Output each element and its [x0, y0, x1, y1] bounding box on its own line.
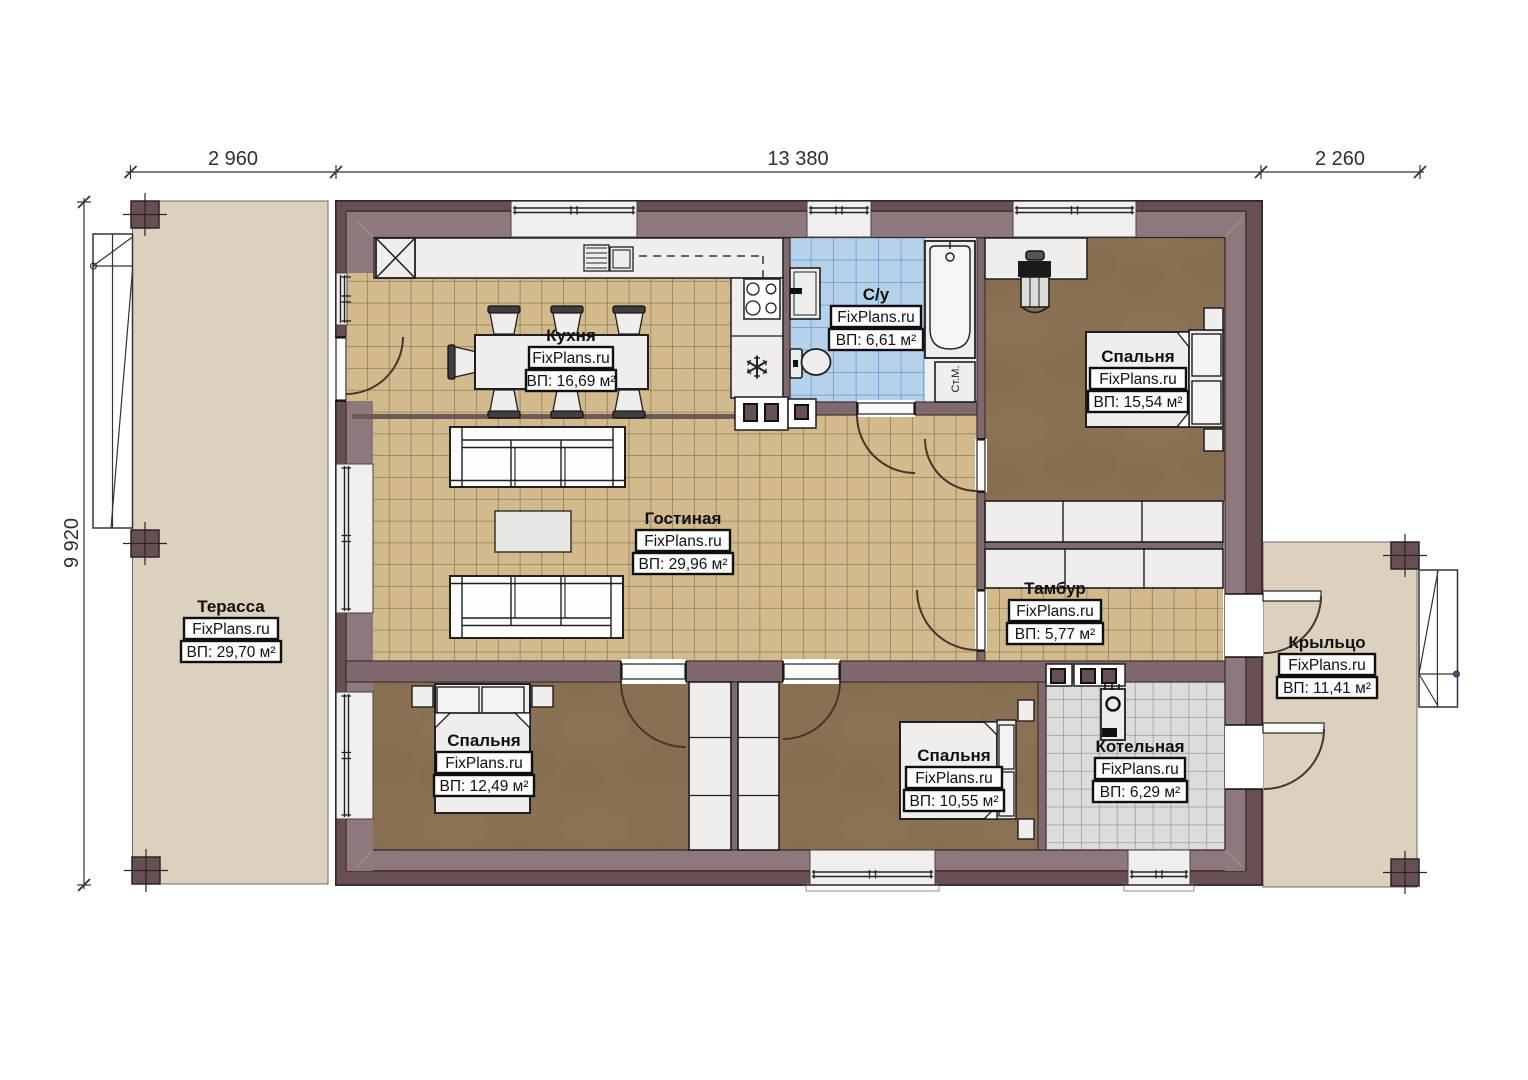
svg-text:ВП: 15,54 м²: ВП: 15,54 м²: [1093, 394, 1182, 411]
svg-text:FixPlans.ru: FixPlans.ru: [1101, 761, 1179, 778]
svg-text:ВП: 10,55 м²: ВП: 10,55 м²: [909, 793, 998, 810]
svg-text:Кухня: Кухня: [546, 326, 596, 345]
svg-text:ВП: 16,69 м²: ВП: 16,69 м²: [526, 373, 615, 390]
svg-text:ВП: 29,96 м²: ВП: 29,96 м²: [638, 556, 727, 573]
svg-text:FixPlans.ru: FixPlans.ru: [445, 755, 523, 772]
svg-text:FixPlans.ru: FixPlans.ru: [192, 621, 270, 638]
svg-text:FixPlans.ru: FixPlans.ru: [644, 533, 722, 550]
svg-text:ВП: 6,29 м²: ВП: 6,29 м²: [1100, 784, 1180, 801]
svg-text:Спальня: Спальня: [917, 746, 990, 765]
svg-text:FixPlans.ru: FixPlans.ru: [1016, 603, 1094, 620]
svg-text:ВП: 5,77 м²: ВП: 5,77 м²: [1015, 626, 1095, 643]
svg-text:FixPlans.ru: FixPlans.ru: [1288, 657, 1366, 674]
svg-text:Гостиная: Гостиная: [645, 509, 722, 528]
svg-text:Ст.М.: Ст.М.: [950, 365, 962, 392]
svg-text:2 260: 2 260: [1315, 148, 1365, 170]
svg-text:9 920: 9 920: [61, 518, 83, 568]
svg-text:ВП: 11,41 м²: ВП: 11,41 м²: [1283, 680, 1371, 697]
svg-text:ВП: 12,49 м²: ВП: 12,49 м²: [439, 778, 528, 795]
svg-text:Спальня: Спальня: [447, 731, 520, 750]
svg-text:Котельная: Котельная: [1095, 737, 1184, 756]
svg-text:FixPlans.ru: FixPlans.ru: [1099, 371, 1177, 388]
svg-text:FixPlans.ru: FixPlans.ru: [532, 350, 610, 367]
svg-text:Тамбур: Тамбур: [1024, 579, 1086, 598]
svg-text:FixPlans.ru: FixPlans.ru: [915, 770, 993, 787]
svg-text:2 960: 2 960: [208, 148, 258, 170]
svg-text:ВП: 29,70 м²: ВП: 29,70 м²: [186, 644, 275, 661]
svg-text:ВП: 6,61 м²: ВП: 6,61 м²: [836, 332, 916, 349]
svg-text:Терасса: Терасса: [197, 597, 265, 616]
svg-text:С/у: С/у: [863, 285, 890, 304]
svg-text:13 380: 13 380: [767, 148, 828, 170]
svg-text:Спальня: Спальня: [1101, 347, 1174, 366]
svg-text:FixPlans.ru: FixPlans.ru: [837, 309, 915, 326]
svg-text:Крыльцо: Крыльцо: [1288, 633, 1365, 652]
